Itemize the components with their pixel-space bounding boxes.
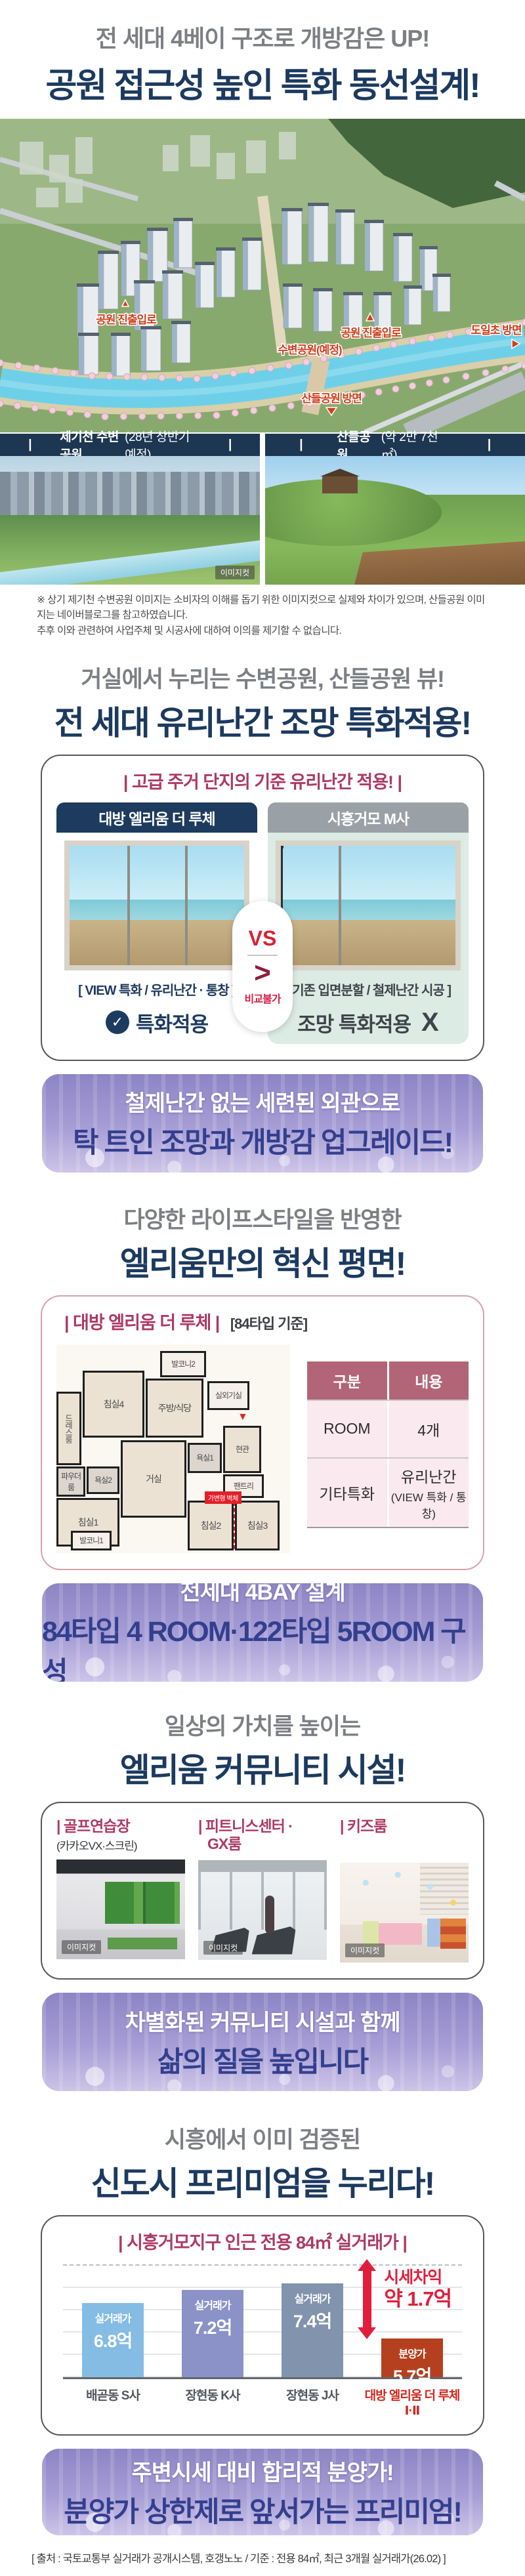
row2-label: 기타특화 bbox=[307, 1459, 389, 1527]
annotation-line2: 약 1.7억 bbox=[384, 2287, 451, 2311]
row1-value: 4개 bbox=[389, 1401, 469, 1457]
table-row-etc: 기타특화 유리난간 (VIEW 특화 / 통창) bbox=[307, 1457, 469, 1527]
gym-windows bbox=[198, 1872, 327, 1930]
view-section-heading: 거실에서 누리는 수변공원, 산들공원 뷰! 전 세대 유리난간 조망 특화적용… bbox=[0, 661, 525, 744]
room-powder: 파우더룸 bbox=[56, 1466, 85, 1497]
room-entrance: 현관 bbox=[223, 1426, 261, 1473]
chart-bar: 실거래가7.2억 bbox=[182, 2290, 243, 2377]
banner-community: 차별화된 커뮤니티 시설과 함께 삶의 질을 높입니다 bbox=[42, 1993, 483, 2091]
fitness-title-line2: GX룸 bbox=[198, 1835, 327, 1854]
chart-title: | 시흥거모지구 인근 전용 84㎡ 실거래가 | bbox=[56, 2228, 469, 2254]
compare-right-badge-text: 조망 특화적용 bbox=[297, 1008, 411, 1037]
x-mark: X bbox=[421, 1008, 439, 1037]
kids-photo: 이미지컷 bbox=[340, 1863, 469, 1963]
fitness-photo: 이미지컷 bbox=[198, 1860, 327, 1960]
greater-than-icon: > bbox=[254, 960, 271, 986]
plan-section-heading: 다양한 라이프스타일을 반영한 엘리움만의 혁신 평면! bbox=[0, 1201, 525, 1285]
floorplan-drawing: 드레스룸 침실4 주방/식당 발코니2 실외기실 파우더룸 욕실2 거실 욕실1… bbox=[56, 1344, 290, 1553]
disclaimer-line1: ※ 상기 제기천 수변공원 이미지는 소비자의 이해를 돕기 위한 이미지컷으로… bbox=[37, 594, 485, 621]
room-balcony2: 발코니2 bbox=[160, 1351, 206, 1377]
community-subtitle: 일상의 가치를 높이는 bbox=[0, 1708, 525, 1741]
room-bed3: 침실3 bbox=[235, 1501, 280, 1550]
park-left: | 제기천 수변공원 (28년 상반기 예정) | 이미지컷 bbox=[0, 434, 260, 585]
row1-label: ROOM bbox=[307, 1401, 389, 1457]
bar-label-value: 7.4억 bbox=[282, 2307, 343, 2333]
room-living: 거실 bbox=[121, 1440, 186, 1518]
park-right-photo bbox=[265, 456, 525, 585]
view-title: 전 세대 유리난간 조망 특화적용! bbox=[0, 697, 525, 744]
aerial-illustration: 공원 진출입로 공원 진출입로 수변공원(예정) 도일초 방면 산들공원 방면 bbox=[0, 119, 525, 432]
community-item-fitness: | 피트니스센터 · GX룸 이미지컷 bbox=[198, 1818, 327, 1963]
park-left-caption: | 제기천 수변공원 (28년 상반기 예정) | bbox=[0, 434, 260, 456]
banner-exterior: 철제난간 없는 세련된 외관으로 탁 트인 조망과 개방감 업그레이드! bbox=[42, 1074, 483, 1173]
chart-categories: 배곧동 S사장현동 K사장현동 J사대방 엘리움 더 루체 Ⅰ·Ⅱ bbox=[63, 2386, 462, 2419]
fitness-title: | 피트니스센터 · GX룸 bbox=[198, 1818, 327, 1854]
floorplan-card-title: | 대방 엘리움 더 루체 | [84타입 기준] bbox=[56, 1308, 469, 1334]
vs-label: VS bbox=[249, 926, 277, 951]
banner2-line1: 전세대 4BAY 설계 bbox=[180, 1583, 345, 1607]
check-icon: ✓ bbox=[106, 1010, 129, 1034]
aerial-label-gate1: 공원 진출입로 bbox=[96, 314, 157, 326]
park-photos: | 제기천 수변공원 (28년 상반기 예정) | 이미지컷 | 산들공원 (약… bbox=[0, 434, 525, 585]
banner-4bay: 전세대 4BAY 설계 84타입 4 ROOM·122타입 5ROOM 구성 bbox=[42, 1583, 483, 1682]
compare-right-photo bbox=[276, 841, 461, 970]
chart-bar: 실거래가6.8억 bbox=[82, 2303, 144, 2377]
park-disclaimer: ※ 상기 제기천 수변공원 이미지는 소비자의 이해를 돕기 위한 이미지컷으로… bbox=[0, 585, 525, 638]
room-bath2: 욕실2 bbox=[87, 1466, 119, 1494]
table-header-category: 구분 bbox=[307, 1361, 389, 1400]
floorplan-title: | 대방 엘리움 더 루체 | bbox=[64, 1313, 219, 1333]
kids-table bbox=[379, 1923, 423, 1945]
park-left-photo: 이미지컷 bbox=[0, 456, 260, 585]
chart-annotation: 시세차익 약 1.7억 bbox=[358, 2259, 451, 2339]
bar-label-value: 7.2억 bbox=[182, 2314, 243, 2339]
banner4-line1: 주변시세 대비 합리적 분양가! bbox=[131, 2455, 393, 2487]
table-header-content: 내용 bbox=[389, 1361, 469, 1400]
compare-right-caption: [ 기존 입면분할 / 철제난간 시공 ] bbox=[268, 980, 469, 999]
no-compare-label: 비교불가 bbox=[245, 990, 281, 1006]
golf-mat bbox=[108, 1938, 177, 1949]
table-header-row: 구분 내용 bbox=[307, 1361, 469, 1400]
plan-title: 엘리움만의 혁신 평면! bbox=[0, 1237, 525, 1285]
disclaimer-line2: 추후 이와 관련하여 사업주체 및 시공사에 대하여 이의를 제기할 수 없습니… bbox=[37, 625, 341, 636]
row2-value-line1: 유리난간 bbox=[401, 1465, 457, 1487]
chart-bar: 분양가5.7억 bbox=[381, 2338, 443, 2377]
park-right: | 산들공원 (약 2만 7천㎡) | bbox=[265, 434, 525, 585]
source-note: [ 출처 : 국토교통부 실거래가 공개시스템, 호갱노노 / 기준 : 전용 … bbox=[31, 2550, 525, 2576]
aerial-label-sandeul: 산들공원 방면 bbox=[301, 392, 362, 405]
imagecut-watermark: 이미지컷 bbox=[203, 1941, 243, 1955]
premium-title: 신도시 프리미엄을 누리다! bbox=[0, 2157, 525, 2205]
divider: | bbox=[5, 438, 54, 452]
compare-left-badge-text: 특화적용 bbox=[136, 1008, 208, 1037]
entrance-triangle-icon: ▼ bbox=[238, 1411, 248, 1423]
divider: | bbox=[459, 438, 520, 452]
movable-wall-tag: 가변형 벽체 bbox=[205, 1491, 241, 1504]
plan-spec-table: 구분 내용 ROOM 4개 기타특화 유리난간 (VIEW 특화 / 통창) bbox=[307, 1361, 469, 1528]
annotation-line1: 시세차익 bbox=[384, 2268, 451, 2287]
promo-page: 전 세대 4베이 구조로 개방감은 UP! 공원 접근성 높인 특화 동선설계!… bbox=[0, 0, 525, 2576]
park-deck bbox=[351, 540, 525, 585]
aerial-rendering: 공원 진출입로 공원 진출입로 수변공원(예정) 도일초 방면 산들공원 방면 bbox=[0, 119, 525, 432]
room-dressroom: 드레스룸 bbox=[56, 1392, 81, 1465]
imagecut-watermark: 이미지컷 bbox=[215, 566, 255, 579]
vs-pill: VS > 비교불가 bbox=[232, 901, 293, 1032]
hero-subtitle: 전 세대 4베이 구조로 개방감은 UP! bbox=[0, 20, 525, 54]
community-grid: | 골프연습장 (카카오VX·스크린) 이미지컷 | 피트니스센터 · GX룸 bbox=[56, 1818, 469, 1963]
floorplan-card: | 대방 엘리움 더 루체 | [84타입 기준] 드레스룸 침실4 주방/식당… bbox=[41, 1295, 484, 1570]
tab-siheung-geomo-m: 시흥거모 M사 bbox=[268, 802, 469, 833]
premium-section-heading: 시흥에서 이미 검증된 신도시 프리미엄을 누리다! bbox=[0, 2121, 525, 2205]
imagecut-watermark: 이미지컷 bbox=[62, 1940, 101, 1954]
compare-left-caption: [ VIEW 특화 / 유리난간 · 통창 ] bbox=[56, 980, 257, 999]
bar-label-type: 실거래가 bbox=[282, 2290, 343, 2306]
room-kitchen: 주방/식당 bbox=[146, 1379, 203, 1438]
divider: | bbox=[270, 438, 331, 452]
room-balcony1: 발코니1 bbox=[71, 1531, 112, 1550]
chart-bar: 실거래가7.4억 bbox=[282, 2283, 343, 2377]
golf-title: | 골프연습장 bbox=[56, 1818, 185, 1836]
kids-title: | 키즈룸 bbox=[340, 1818, 469, 1836]
row2-value: 유리난간 (VIEW 특화 / 통창) bbox=[389, 1459, 469, 1527]
price-chart-card: | 시흥거모지구 인근 전용 84㎡ 실거래가 | 실거래가6.8억실거래가7.… bbox=[41, 2215, 484, 2436]
compare-left-panel: 대방 엘리움 더 루체 [ VIEW 특화 / 유리난간 · 통창 ] ✓ 특화… bbox=[56, 802, 257, 1044]
divider: | bbox=[205, 438, 255, 452]
plan-subtitle: 다양한 라이프스타일을 반영한 bbox=[0, 1201, 525, 1235]
kids-chair bbox=[363, 1921, 379, 1947]
chart-category-label: 장현동 J사 bbox=[262, 2386, 362, 2419]
tab-daebang-elium: 대방 엘리움 더 루체 bbox=[56, 802, 257, 833]
chart-category-label: 장현동 K사 bbox=[163, 2386, 262, 2419]
banner3-line1: 차별화된 커뮤니티 시설과 함께 bbox=[125, 2005, 400, 2037]
row2-value-line2: (VIEW 특화 / 통창) bbox=[389, 1488, 469, 1521]
bar-label-type: 실거래가 bbox=[182, 2296, 243, 2312]
chart-plot: 실거래가6.8억실거래가7.2억실거래가7.4억분양가5.7억 시세차익 약 1… bbox=[63, 2264, 462, 2377]
bar-label-value: 5.7억 bbox=[381, 2362, 443, 2388]
chart-bar-slot: 실거래가7.4억 bbox=[262, 2264, 362, 2377]
double-arrow-icon bbox=[358, 2259, 376, 2339]
annotation-text: 시세차익 약 1.7억 bbox=[384, 2259, 451, 2310]
room-bath1: 욕실1 bbox=[188, 1443, 222, 1473]
golf-photo: 이미지컷 bbox=[56, 1859, 185, 1959]
glass-railing-view bbox=[70, 846, 244, 965]
kids-toy-bins bbox=[440, 1919, 466, 1949]
compare-card-title: | 고급 주거 단지의 기준 유리난간 적용! | bbox=[56, 768, 469, 793]
chart-bar-slot: 실거래가6.8억 bbox=[63, 2264, 163, 2377]
park-right-caption: | 산들공원 (약 2만 7천㎡) | bbox=[265, 434, 525, 456]
floorplan-subtitle: [84타입 기준] bbox=[230, 1316, 307, 1332]
hero-title: 공원 접근성 높인 특화 동선설계! bbox=[0, 58, 525, 107]
banner3-line2: 삶의 질을 높입니다 bbox=[157, 2039, 367, 2080]
chart-category-label: 대방 엘리움 더 루체 Ⅰ·Ⅱ bbox=[362, 2386, 462, 2419]
bar-label-type: 실거래가 bbox=[82, 2310, 144, 2325]
aerial-label-river-park: 수변공원(예정) bbox=[278, 344, 342, 356]
steel-railing-view bbox=[281, 846, 455, 965]
price-chart: 실거래가6.8억실거래가7.2억실거래가7.4억분양가5.7억 시세차익 약 1… bbox=[56, 2264, 469, 2419]
community-section-heading: 일상의 가치를 높이는 엘리움 커뮤니티 시설! bbox=[0, 1708, 525, 1791]
compare-left-badge: ✓ 특화적용 bbox=[56, 1008, 257, 1037]
room-outdoor-unit: 실외기실 bbox=[207, 1381, 249, 1410]
bar-label-value: 6.8억 bbox=[82, 2327, 144, 2352]
table-row-room: ROOM 4개 bbox=[307, 1400, 469, 1457]
city-skyline bbox=[0, 472, 260, 516]
hero-headline: 전 세대 4베이 구조로 개방감은 UP! 공원 접근성 높인 특화 동선설계! bbox=[0, 0, 525, 119]
community-card: | 골프연습장 (카카오VX·스크린) 이미지컷 | 피트니스센터 · GX룸 bbox=[41, 1802, 484, 1980]
room-bed4: 침실4 bbox=[83, 1371, 144, 1438]
room-bed2: 침실2 bbox=[188, 1501, 234, 1550]
banner-price: 주변시세 대비 합리적 분양가! 분양가 상한제로 앞서가는 프리미엄! bbox=[42, 2449, 483, 2535]
aerial-label-doil: 도일초 방면 bbox=[471, 324, 522, 337]
imagecut-watermark: 이미지컷 bbox=[345, 1943, 385, 1957]
premium-subtitle: 시흥에서 이미 검증된 bbox=[0, 2121, 525, 2155]
compare-card: | 고급 주거 단지의 기준 유리난간 적용! | 대방 엘리움 더 루체 [ … bbox=[41, 755, 484, 1061]
banner1-line2: 탁 트인 조망과 개방감 업그레이드! bbox=[73, 1120, 452, 1161]
community-item-kids: | 키즈룸 이미지컷 bbox=[340, 1818, 469, 1963]
chart-category-label: 배곧동 S사 bbox=[63, 2386, 163, 2419]
park-house bbox=[322, 476, 358, 493]
bar-label-type: 분양가 bbox=[381, 2345, 443, 2361]
aerial-label-gate2: 공원 진출입로 bbox=[341, 327, 402, 339]
floorplan-body: 드레스룸 침실4 주방/식당 발코니2 실외기실 파우더룸 욕실2 거실 욕실1… bbox=[56, 1344, 469, 1553]
banner4-line2: 분양가 상한제로 앞서가는 프리미엄! bbox=[64, 2489, 461, 2530]
runner-silhouette bbox=[265, 1896, 274, 1934]
fitness-title-line1: | 피트니스센터 · bbox=[198, 1818, 293, 1835]
compare-body: 대방 엘리움 더 루체 [ VIEW 특화 / 유리난간 · 통창 ] ✓ 특화… bbox=[56, 802, 469, 1044]
community-item-golf: | 골프연습장 (카카오VX·스크린) 이미지컷 bbox=[56, 1818, 185, 1963]
golf-screen bbox=[105, 1882, 180, 1924]
golf-sub: (카카오VX·스크린) bbox=[56, 1837, 185, 1853]
compare-left-photo bbox=[64, 841, 249, 970]
movable-wall-line bbox=[234, 1502, 235, 1549]
compare-right-badge: 조망 특화적용 X bbox=[268, 1008, 469, 1037]
community-title: 엘리움 커뮤니티 시설! bbox=[0, 1744, 525, 1791]
banner1-line1: 철제난간 없는 세련된 외관으로 bbox=[125, 1085, 400, 1117]
compare-right-panel: 시흥거모 M사 [ 기존 입면분할 / 철제난간 시공 ] 조망 특화적용 X bbox=[268, 802, 469, 1044]
pill-divider bbox=[247, 955, 278, 956]
view-subtitle: 거실에서 누리는 수변공원, 산들공원 뷰! bbox=[0, 661, 525, 694]
chart-bar-slot: 실거래가7.2억 bbox=[163, 2264, 262, 2377]
banner2-line2: 84타입 4 ROOM·122타입 5ROOM 구성 bbox=[42, 1609, 483, 1682]
